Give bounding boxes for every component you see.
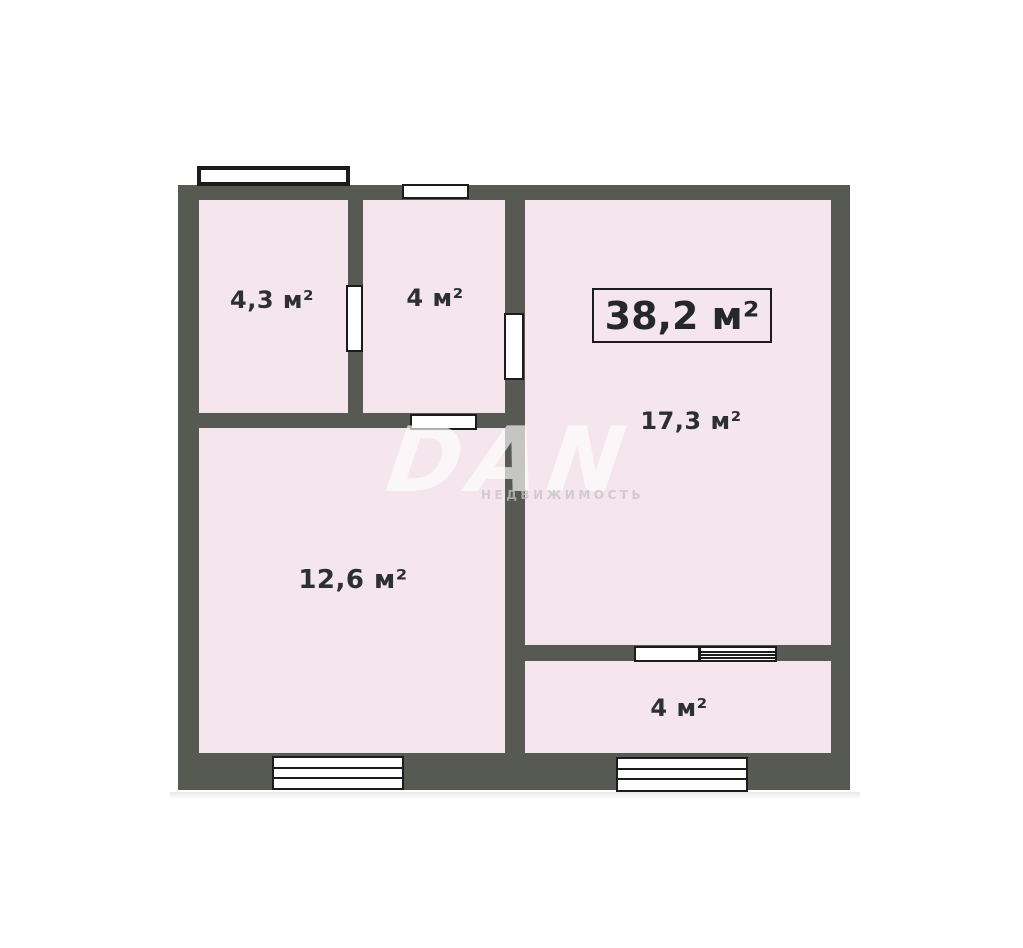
window-pane: [701, 651, 775, 653]
window-pane: [618, 768, 746, 770]
window-kitchen: [272, 756, 404, 790]
window-pane: [701, 654, 775, 656]
floor-plan-image: 38,2 м² 4,3 м² 4 м² 17,3 м² 12,6 м² 4 м²…: [0, 0, 1023, 948]
area-label-hall: 4 м²: [406, 284, 463, 312]
window-living-to-balcony: [699, 646, 777, 662]
window-pane: [618, 778, 746, 780]
door-dressing-room: [346, 285, 363, 352]
area-label-balcony: 4 м²: [650, 694, 707, 722]
total-area-box: 38,2 м²: [592, 288, 772, 343]
window-pane: [701, 657, 775, 659]
balcony-ledge-outline: [197, 166, 350, 186]
entrance-door: [402, 184, 469, 199]
area-label-dressing: 4,3 м²: [230, 286, 314, 314]
door-kitchen: [410, 414, 477, 430]
door-living-room: [504, 313, 524, 380]
door-balcony: [634, 646, 700, 662]
window-pane: [274, 777, 402, 779]
window-pane: [274, 767, 402, 769]
area-label-kitchen: 12,6 м²: [298, 565, 407, 595]
window-balcony: [616, 757, 748, 792]
total-area-label: 38,2 м²: [605, 294, 760, 338]
area-label-living: 17,3 м²: [640, 407, 741, 435]
ground-shadow: [170, 792, 860, 799]
